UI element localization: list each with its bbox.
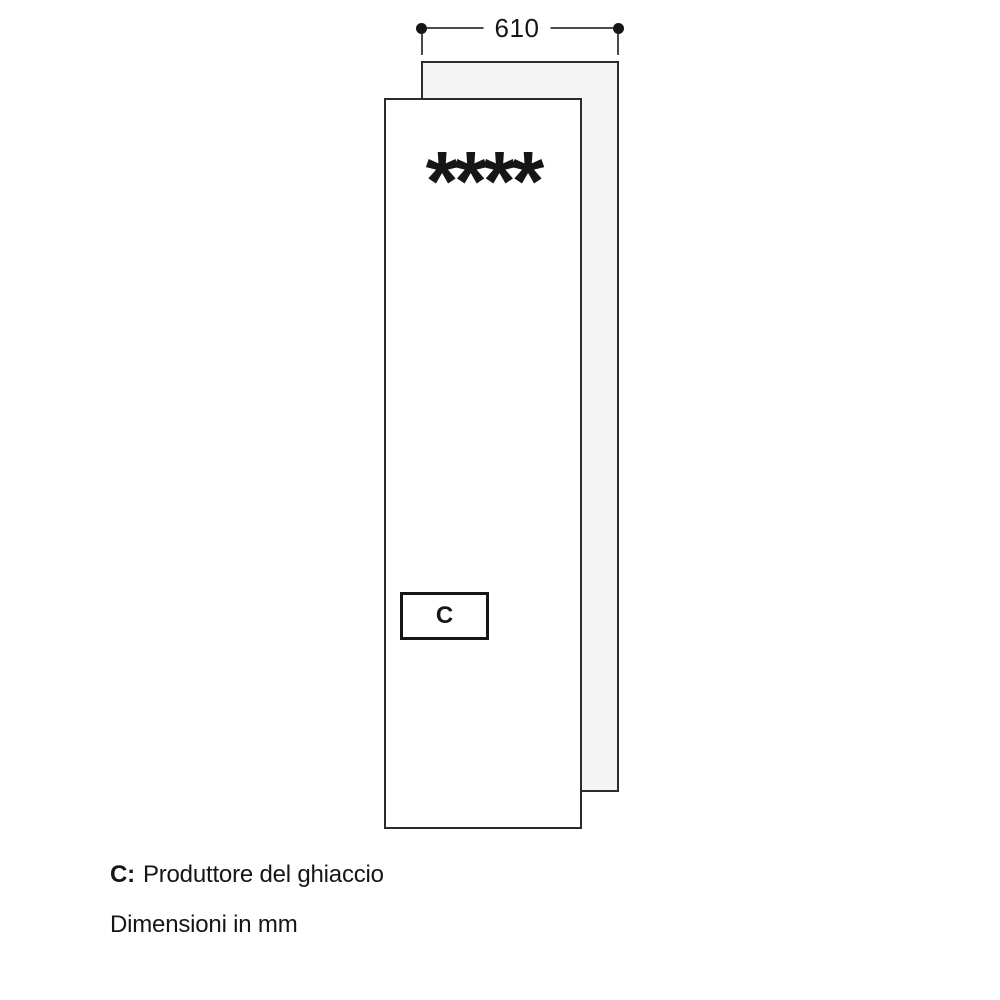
appliance-front-door: **** C	[384, 98, 582, 829]
legend-line: C:Produttore del ghiaccio	[110, 860, 384, 890]
legend-description: Produttore del ghiaccio	[143, 861, 384, 888]
dimension-endpoint-dot-left	[416, 23, 427, 34]
dimension-value: 610	[484, 13, 551, 43]
dimension-endpoint-dot-right	[613, 23, 624, 34]
freezer-star-rating-icon: ****	[386, 139, 580, 223]
ice-maker-box: C	[400, 592, 489, 640]
dimension-extension-line-right	[617, 34, 619, 55]
diagram-canvas: 610 **** C C:Produttore del ghiaccio Dim…	[0, 0, 1000, 1000]
ice-maker-label: C	[436, 604, 453, 628]
dimension-extension-line-left	[421, 34, 423, 55]
legend-key: C:	[110, 861, 135, 888]
units-note: Dimensioni in mm	[110, 910, 298, 940]
